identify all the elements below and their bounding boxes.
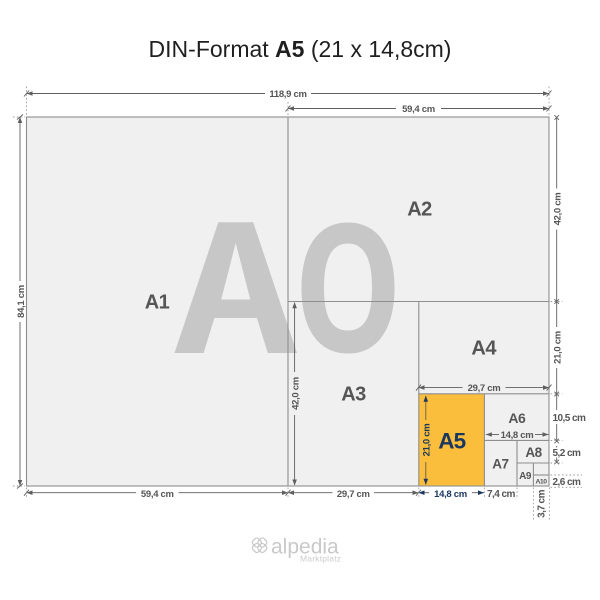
svg-text:A6: A6 — [508, 410, 526, 426]
svg-text:42,0 cm: 42,0 cm — [290, 377, 301, 410]
svg-text:42,0 cm: 42,0 cm — [553, 193, 564, 226]
svg-text:DIN-Format A5 (21 x 14,8cm): DIN-Format A5 (21 x 14,8cm) — [149, 36, 452, 62]
svg-text:14,8 cm: 14,8 cm — [501, 430, 534, 441]
svg-text:A7: A7 — [492, 457, 508, 472]
svg-text:21,0 cm: 21,0 cm — [422, 424, 433, 457]
svg-text:59,4 cm: 59,4 cm — [141, 489, 174, 500]
svg-text:A9: A9 — [519, 471, 532, 482]
svg-text:A8: A8 — [525, 445, 542, 460]
svg-text:14,8 cm: 14,8 cm — [434, 489, 467, 500]
svg-text:A5: A5 — [438, 429, 465, 454]
svg-text:A3: A3 — [341, 384, 366, 406]
svg-text:118,9 cm: 118,9 cm — [269, 89, 306, 100]
svg-text:29,7 cm: 29,7 cm — [468, 383, 501, 394]
svg-text:84,1 cm: 84,1 cm — [16, 285, 27, 318]
svg-text:Marktplatz: Marktplatz — [300, 554, 341, 564]
svg-text:29,7 cm: 29,7 cm — [337, 489, 370, 500]
svg-text:21,0 cm: 21,0 cm — [553, 331, 564, 364]
svg-text:59,4 cm: 59,4 cm — [402, 104, 435, 115]
svg-text:A2: A2 — [407, 199, 432, 221]
svg-text:3,7 cm: 3,7 cm — [536, 489, 547, 517]
svg-text:10,5 cm: 10,5 cm — [553, 413, 587, 424]
svg-text:2,6 cm: 2,6 cm — [553, 477, 581, 488]
svg-text:A10: A10 — [536, 478, 548, 485]
svg-text:5,2 cm: 5,2 cm — [553, 448, 581, 459]
svg-text:7,4 cm: 7,4 cm — [487, 489, 515, 500]
svg-text:A1: A1 — [145, 292, 170, 314]
svg-text:A4: A4 — [471, 338, 497, 360]
